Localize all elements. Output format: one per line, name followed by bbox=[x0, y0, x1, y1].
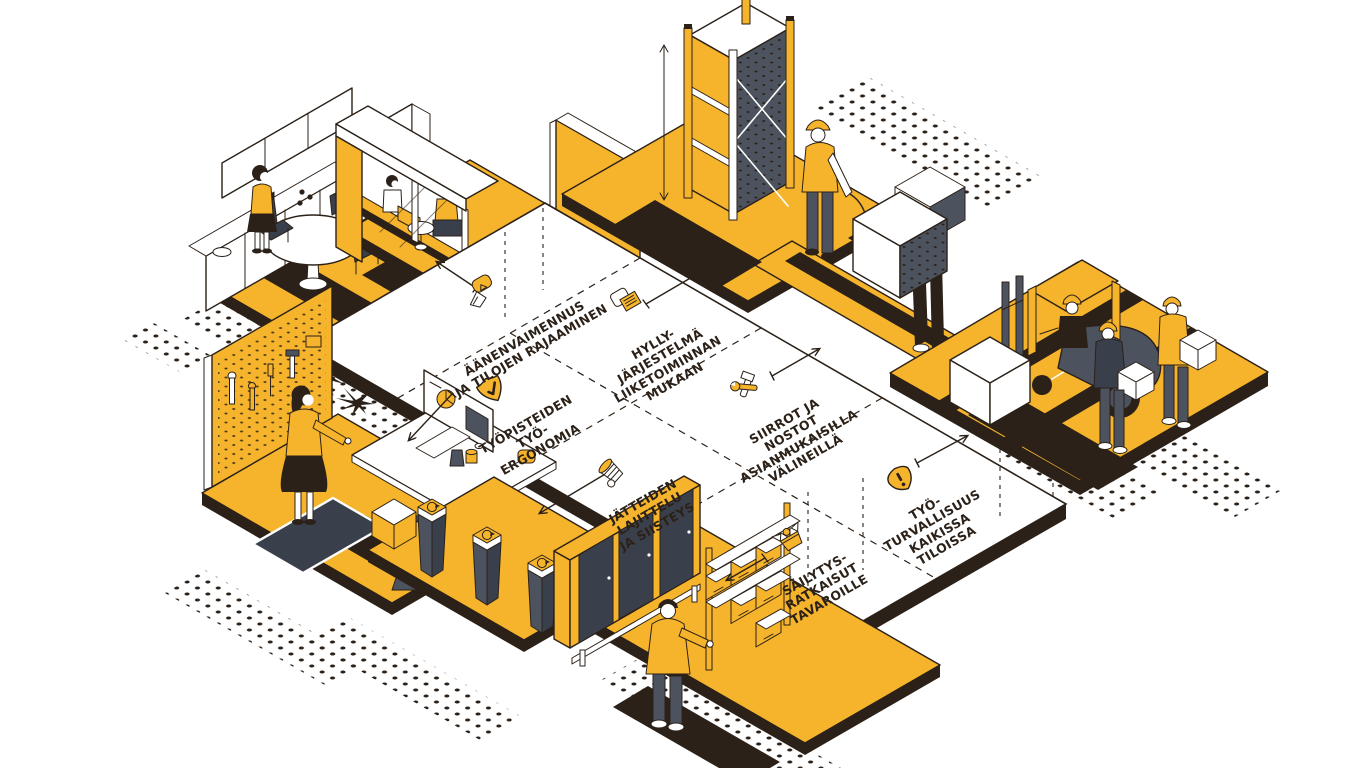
shoe bbox=[651, 720, 667, 728]
sink bbox=[213, 248, 231, 257]
shirt bbox=[251, 184, 273, 214]
vest bbox=[1057, 316, 1088, 348]
shoe bbox=[304, 519, 316, 525]
rack-post bbox=[742, 0, 750, 24]
recycling-bin bbox=[418, 499, 446, 577]
mouse bbox=[475, 443, 483, 448]
leg bbox=[1178, 367, 1188, 423]
shoe bbox=[668, 723, 684, 731]
leg bbox=[1164, 365, 1174, 419]
leg bbox=[670, 676, 682, 724]
cooktop-burner bbox=[297, 200, 302, 205]
shoe bbox=[1098, 443, 1112, 450]
blouse bbox=[286, 409, 322, 456]
door-handle bbox=[687, 530, 690, 533]
face bbox=[1102, 328, 1114, 340]
skirt bbox=[281, 456, 328, 492]
door-handle bbox=[607, 576, 610, 579]
cab-pillar bbox=[1028, 286, 1036, 356]
shoe bbox=[1162, 418, 1176, 425]
locker-door bbox=[660, 489, 693, 596]
leg bbox=[1114, 390, 1124, 448]
shoe bbox=[252, 249, 262, 254]
leg bbox=[1100, 388, 1110, 444]
hoodie bbox=[646, 619, 690, 675]
cooktop-burner bbox=[307, 194, 312, 199]
cooktop-burner bbox=[299, 189, 304, 194]
isometric-infographic: ÄÄNENVAIMENNUS JA TILOJEN RAJAAMINEN HYL… bbox=[0, 0, 1366, 768]
leg bbox=[807, 192, 818, 250]
small-box bbox=[306, 336, 321, 347]
hand bbox=[707, 641, 713, 647]
skirt bbox=[247, 214, 277, 232]
hand bbox=[345, 438, 351, 444]
shoe bbox=[1177, 422, 1191, 429]
door-handle bbox=[647, 553, 650, 556]
recycling-bin bbox=[473, 527, 501, 605]
face bbox=[1066, 302, 1078, 314]
face bbox=[1166, 303, 1178, 315]
leg bbox=[653, 674, 665, 722]
rack-post bbox=[786, 20, 794, 188]
wheel bbox=[1032, 375, 1052, 395]
leg bbox=[822, 192, 833, 253]
face bbox=[302, 394, 313, 405]
shoe bbox=[292, 519, 304, 525]
pallet-rack bbox=[684, 0, 794, 220]
shoe bbox=[1113, 447, 1127, 454]
shoe bbox=[805, 249, 819, 256]
shoe bbox=[262, 249, 272, 254]
locker-side bbox=[554, 551, 570, 648]
glass-mullion bbox=[412, 178, 418, 243]
bench-leg bbox=[692, 586, 697, 602]
rack-front-yellow bbox=[690, 35, 734, 214]
monitor-stand bbox=[450, 450, 464, 466]
locker-door bbox=[619, 512, 653, 619]
leg bbox=[264, 232, 269, 249]
illustration-canvas bbox=[0, 0, 1366, 768]
shoe bbox=[821, 253, 835, 260]
leg bbox=[307, 492, 313, 520]
face bbox=[811, 128, 825, 142]
recycling-bin bbox=[528, 555, 556, 633]
leg bbox=[255, 232, 260, 249]
face bbox=[260, 172, 270, 182]
rack-post bbox=[684, 28, 692, 198]
face bbox=[661, 604, 676, 619]
leg bbox=[295, 492, 301, 520]
wrench-tool bbox=[228, 372, 236, 404]
rack-post bbox=[729, 50, 737, 220]
bench-leg bbox=[580, 650, 585, 666]
wrench-tool bbox=[249, 383, 256, 411]
coffee-mug bbox=[466, 449, 477, 463]
booth-side-panel bbox=[336, 136, 362, 262]
